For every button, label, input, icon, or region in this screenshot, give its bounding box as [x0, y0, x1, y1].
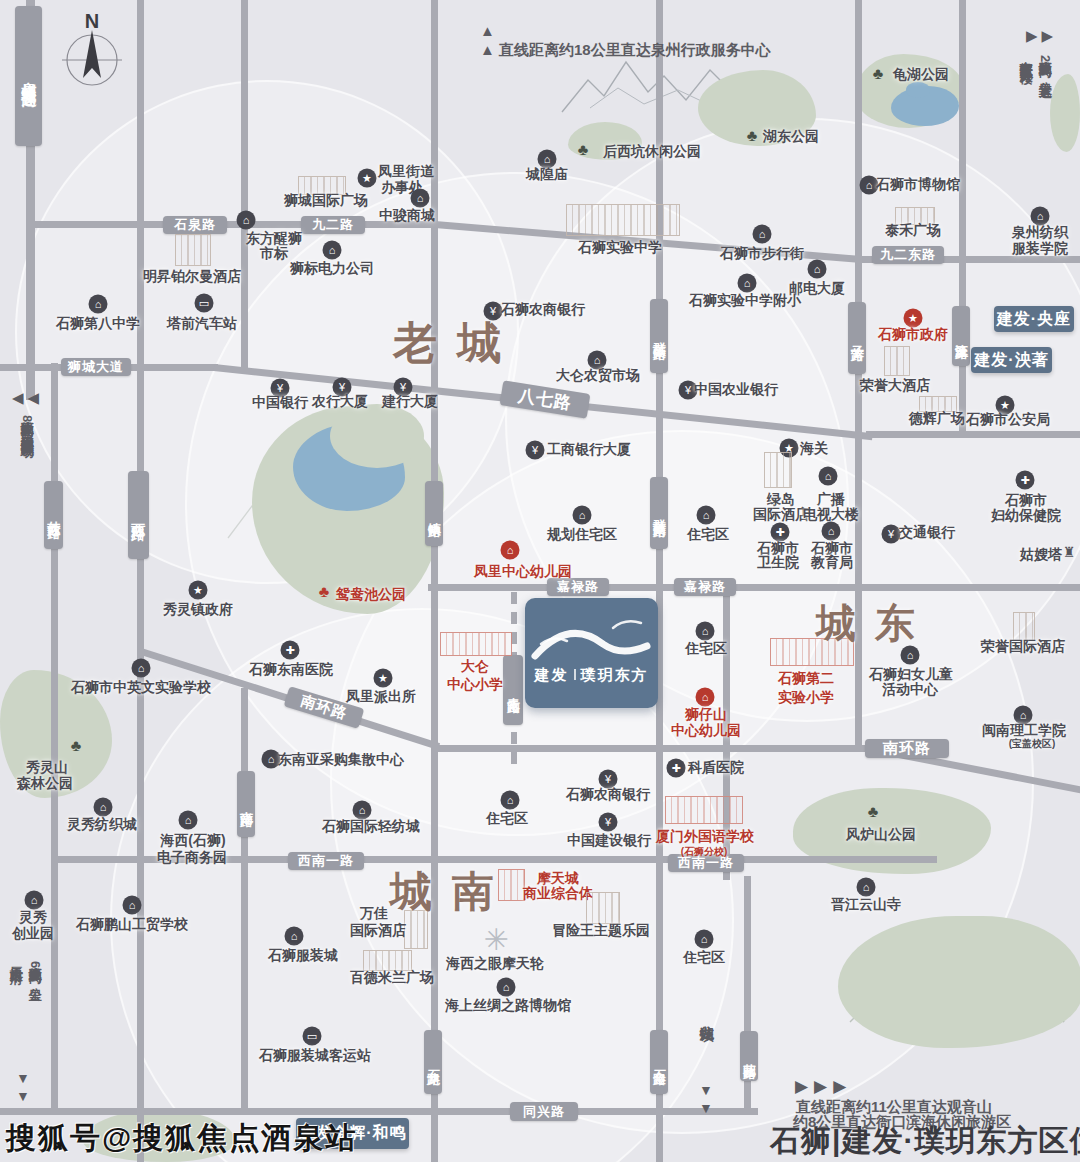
shishi-no8-middle-school-label: 石狮第八中学	[56, 315, 140, 333]
road-label: 南环路	[865, 739, 949, 758]
tree-icon: ♣	[71, 738, 82, 754]
residential-area-central-label: 住宅区	[486, 810, 528, 828]
bank-icon: ¥	[599, 813, 618, 832]
building-sketch-icon	[566, 204, 680, 236]
taqian-bus-station-label: 塔前汽车站	[167, 315, 237, 333]
building-sketch-icon	[363, 950, 412, 971]
fengli-central-kindergarten-label: 凤里中心幼儿园	[474, 563, 572, 581]
building-icon: ⌂	[822, 522, 841, 541]
distance-note: ◀◀	[12, 389, 43, 408]
dehui-plaza-label: 德辉广场	[909, 410, 965, 428]
temple-icon: ⌂	[857, 878, 876, 897]
compass-icon: N	[60, 12, 124, 92]
tree-icon: ♣	[868, 804, 879, 820]
minnan-university-of-science-label: (宝盖校区)	[1009, 737, 1056, 751]
road-segment	[435, 745, 875, 752]
lingxiu-pioneer-park-label: 创业园	[12, 925, 54, 943]
xiuling-town-government-label: 秀灵镇政府	[163, 601, 233, 619]
road-label: 西环路	[128, 471, 149, 559]
shishi-public-security-bureau-label: 石狮市公安局	[966, 411, 1050, 429]
chenghuang-temple-label: 城隍庙	[526, 166, 568, 184]
park-area	[330, 404, 424, 468]
project-name: 建发璞玥东方	[525, 666, 658, 685]
road-segment	[28, 221, 438, 228]
haixi-shishi-ecommerce-park-label: 电子商务园	[157, 849, 227, 867]
shibiao-electric-power-label: 狮标电力公司	[290, 260, 374, 278]
china-construction-bank-label: 中国建设银行	[567, 832, 651, 850]
building-sketch-icon	[665, 796, 743, 824]
building-sketch-icon	[764, 452, 792, 488]
distance-note: ▼ ▼	[699, 1082, 713, 1117]
park-area	[1050, 74, 1080, 152]
building-sketch-icon	[175, 234, 211, 266]
building-icon: ⌂	[696, 622, 715, 641]
road-segment	[137, 0, 144, 1162]
bank-icon: ¥	[526, 441, 545, 460]
bank-of-china-label: 中国银行	[252, 394, 308, 412]
distance-note: 直线距离约22公里直达 台商投资区行政办公大楼	[1016, 50, 1054, 220]
distance-note: 直线距离约8公里直达泉州晋江国际机场	[17, 410, 36, 645]
southeast-asia-procurement-center-label: 东南亚采购集散中心	[278, 751, 404, 769]
shishi-pengshan-trade-school-label: 石狮鹏山工贸学校	[76, 916, 188, 934]
baide-milan-plaza-label: 百德米兰广场	[350, 969, 434, 987]
oriental-lion-landmark-label: 市标	[260, 245, 288, 263]
building-sketch-icon	[586, 892, 620, 924]
tree-icon: ♣	[747, 128, 758, 144]
fenglushan-park-label: 风炉山公园	[846, 826, 916, 844]
shop-icon: ⌂	[753, 225, 772, 244]
road-segment	[959, 0, 966, 438]
maritime-silk-road-museum-label: 海上丝绸之路博物馆	[445, 997, 571, 1015]
distance-note: ▼ ▼	[16, 1070, 30, 1105]
road-segment	[241, 0, 248, 370]
quanzhou-textile-garment-institute-label: 服装学院	[1012, 240, 1068, 258]
shizaishan-central-kindergarten-label: 中心幼儿园	[671, 722, 741, 740]
ferris-wheel-icon: ✳	[483, 925, 508, 955]
building-icon: ⌂	[573, 506, 592, 525]
school-icon: ⌂	[696, 688, 715, 707]
location-map: N 泉州环城高速石泉路九二路九二东路狮城大道八七路嘉禄路嘉禄路南环路南环路西南一…	[0, 0, 1080, 1162]
tree-icon: ♣	[319, 584, 330, 600]
park-area	[838, 916, 1080, 1048]
shishi-exp-middle-school-affiliated-primary-label: 石狮实验中学附小	[689, 292, 801, 310]
building-icon: ⌂	[179, 811, 198, 830]
district-label: 城 南	[390, 864, 498, 920]
distance-note: ▶▶▶	[795, 1076, 852, 1097]
star-icon: ★	[904, 309, 923, 328]
distance-note: ▲ ▲ 直线距离约18公里直达泉州行政服务中心	[480, 22, 771, 60]
building-icon: ⌂	[94, 798, 113, 817]
map-title: 石狮|建发·璞玥东方区位图	[770, 1121, 1080, 1162]
building-sketch-icon	[1013, 612, 1035, 641]
mingsheng-pullman-hotel-label: 明昇铂尔曼酒店	[143, 268, 241, 286]
greenland-international-hotel-label: 国际酒店	[753, 506, 809, 524]
shishi-garment-city-label: 石狮服装城	[268, 947, 338, 965]
wanjia-international-hotel-label: 国际酒店	[350, 922, 406, 940]
star-icon: ★	[374, 669, 393, 688]
road-label: 石金路	[650, 1030, 668, 1094]
abc-bank-building-label: 农行大厦	[312, 393, 368, 411]
school-icon: ⌂	[738, 274, 757, 293]
shishi-rural-commercial-bank-north-label: 石狮农商银行	[501, 301, 585, 319]
building-icon: ⌂	[697, 506, 716, 525]
building-icon: ⌂	[25, 891, 44, 910]
distance-note: ▶▶	[1026, 27, 1057, 46]
shishi-health-center-label: 卫生院	[757, 554, 799, 572]
yuanyangchi-park-label: 鸳鸯池公园	[336, 586, 406, 604]
building-icon: ⌂	[695, 930, 714, 949]
building-icon: ⌂	[501, 791, 520, 810]
road-label: 泉州环城高速	[15, 6, 42, 146]
xiamen-foreign-language-school-label: (石狮分校)	[681, 845, 728, 859]
adventure-king-theme-park-label: 冒险王主题乐园	[552, 922, 650, 940]
shishi-pedestrian-street-label: 石狮市步行街	[720, 245, 804, 263]
road-segment	[51, 363, 58, 1113]
shishi-museum-label: 石狮市博物馆	[876, 176, 960, 194]
shishi-southeast-hospital-label: 石狮东南医院	[249, 661, 333, 679]
school-icon: ⌂	[501, 541, 520, 560]
school-icon: ⌂	[89, 295, 108, 314]
project-title: 璞玥东方	[581, 666, 649, 683]
haixi-shishi-ecommerce-park-label: 海西(石狮)	[160, 832, 225, 850]
mountain-ridge-logo-icon	[525, 604, 658, 666]
road-segment	[241, 688, 248, 1113]
road-label: 西南一路	[288, 852, 364, 870]
jinjiang-yunshan-temple-label: 晋江云山寺	[831, 896, 901, 914]
shishi-education-bureau-label: 教育局	[811, 554, 853, 572]
xiulingshan-forest-park-label: 森林公园	[17, 775, 73, 793]
watermark: 搜狐号@搜狐焦点酒泉站	[6, 1118, 357, 1159]
road-label: 石龙路	[424, 1030, 442, 1094]
dalun-farmers-market-label: 大仑农贸市场	[556, 367, 640, 385]
brand-project-badge: 建发·央座	[994, 306, 1074, 332]
garment-city-passenger-station-label: 石狮服装城客运站	[259, 1047, 371, 1065]
brand-name: 建发	[535, 666, 569, 683]
star-icon: ★	[358, 169, 377, 188]
building-icon: ⌂	[237, 211, 256, 230]
building-sketch-icon	[440, 632, 512, 656]
building-icon: ⌂	[819, 467, 838, 486]
road-segment	[656, 0, 663, 1162]
rongyu-grand-hotel-label: 荣誉大酒店	[860, 377, 930, 395]
shishi-rural-commercial-bank-south-label: 石狮农商银行	[566, 786, 650, 804]
agricultural-bank-of-china-label: 中国农业银行	[694, 381, 778, 399]
road-label: 青山路	[503, 655, 523, 725]
hospital-icon: ✚	[1016, 471, 1035, 490]
shishi-international-textile-city-label: 石狮国际轻纺城	[322, 818, 420, 836]
project-card: 建发璞玥东方	[525, 598, 658, 708]
shishi-experimental-middle-school-label: 石狮实验中学	[578, 239, 662, 257]
zhongjun-mall-label: 中骏商城	[379, 207, 435, 225]
road-label: 嘉禄路	[674, 578, 736, 596]
road-label: 群英南路	[650, 477, 668, 549]
guihu-park-label: 龟湖公园	[893, 66, 949, 84]
shishi-maternal-child-hospital-label: 妇幼保健院	[991, 507, 1061, 525]
hudong-park-label: 湖东公园	[763, 128, 819, 146]
customs-label: 海关	[800, 440, 828, 458]
shicheng-international-plaza-label: 狮城国际广场	[284, 192, 368, 210]
motiancheng-commercial-complex-label: 商业综合体	[523, 885, 593, 903]
taihe-plaza-label: 泰禾广场	[885, 222, 941, 240]
shishi-no2-experimental-primary-label: 石狮第二	[778, 670, 834, 688]
road-segment	[0, 1108, 758, 1115]
road-label: 石泉路	[163, 216, 227, 234]
road-label: 子芳路	[848, 302, 866, 374]
star-icon: ★	[189, 581, 208, 600]
bank-icon: ¥	[882, 525, 901, 544]
residential-area-east-label: 住宅区	[685, 640, 727, 658]
kedun-hospital-label: 科盾医院	[688, 759, 744, 777]
logo-divider	[574, 669, 576, 680]
hospital-icon: ✚	[771, 523, 790, 542]
road-segment	[866, 431, 1080, 438]
houxikeng-leisure-park-label: 后西坑休闲公园	[603, 143, 701, 161]
road-label: 同兴路	[510, 1102, 578, 1121]
residential-area-southeast-label: 住宅区	[683, 949, 725, 967]
lake-area	[906, 82, 930, 98]
lingxiu-textile-city-label: 灵秀纺织城	[67, 816, 137, 834]
building-icon: ⌂	[323, 241, 342, 260]
distance-note: 往龙湖镇	[697, 1014, 717, 1080]
brand-project-badge: 建发·泱著	[971, 347, 1052, 373]
residential-area-north-label: 住宅区	[687, 526, 729, 544]
road-label: 狮城大道	[61, 358, 131, 376]
pagoda-icon: ♜	[1063, 545, 1076, 559]
haixi-eye-ferris-wheel-label: 海西之眼摩天轮	[446, 955, 544, 973]
building-icon: ⌂	[808, 260, 827, 279]
shop-icon: ⌂	[411, 189, 430, 208]
gusao-pagoda-label: 姑嫂塔	[1020, 546, 1062, 564]
district-label: 老 城	[393, 314, 505, 373]
road-segment	[428, 584, 1080, 591]
building-sketch-icon	[498, 869, 525, 901]
road-label: 濠江路	[952, 306, 970, 366]
road-label: 群英中路	[650, 299, 668, 373]
road-label: 九二东路	[872, 246, 944, 264]
ccb-building-label: 建行大厦	[382, 393, 438, 411]
district-label: 城 东	[816, 596, 919, 651]
bus-icon: ▭	[303, 1027, 322, 1046]
dalun-central-primary-school-label: 中心小学	[447, 676, 503, 694]
bank-of-communications-label: 交通银行	[899, 524, 955, 542]
wanjia-international-hotel-label: 万佳	[360, 905, 388, 923]
school-icon: ⌂	[123, 896, 142, 915]
road-label: 外西环路	[44, 481, 63, 549]
shishi-chinese-english-experimental-school-label: 石狮市中英文实验学校	[71, 679, 211, 697]
road-label: 南洋路	[237, 771, 255, 837]
building-icon: ⌂	[285, 927, 304, 946]
icbc-building-label: 工商银行大厦	[547, 441, 631, 459]
road-label: 镇中路	[425, 481, 443, 546]
tree-icon: ♣	[873, 66, 884, 82]
shishi-city-government-label: 石狮市政府	[878, 326, 948, 344]
shishi-women-children-activity-center-label: 活动中心	[882, 681, 938, 699]
hospital-icon: ✚	[281, 641, 300, 660]
planned-residential-area-label: 规划住宅区	[547, 526, 617, 544]
building-icon: ⌂	[353, 801, 372, 820]
museum-icon: ⌂	[497, 978, 516, 997]
tree-icon: ♣	[578, 142, 589, 158]
distance-note: 直线距离约60公里 厦门市政府	[6, 956, 44, 1081]
road-label: 九二路	[301, 216, 365, 234]
fengli-police-station-label: 凤里派出所	[346, 688, 416, 706]
school-icon: ⌂	[132, 659, 151, 678]
bus-icon: ▭	[195, 294, 214, 313]
building-sketch-icon	[884, 346, 910, 376]
compass-north-label: N	[85, 12, 99, 32]
road-label: 花园路	[740, 1031, 758, 1081]
rongyu-international-hotel-label: 荣誉国际酒店	[981, 638, 1065, 656]
shishi-no2-experimental-primary-label: 实验小学	[778, 689, 834, 707]
dalun-central-primary-school-label: 大仑	[461, 658, 489, 676]
hospital-icon: ✚	[667, 759, 686, 778]
xiamen-foreign-language-school-label: 厦门外国语学校	[656, 828, 754, 846]
